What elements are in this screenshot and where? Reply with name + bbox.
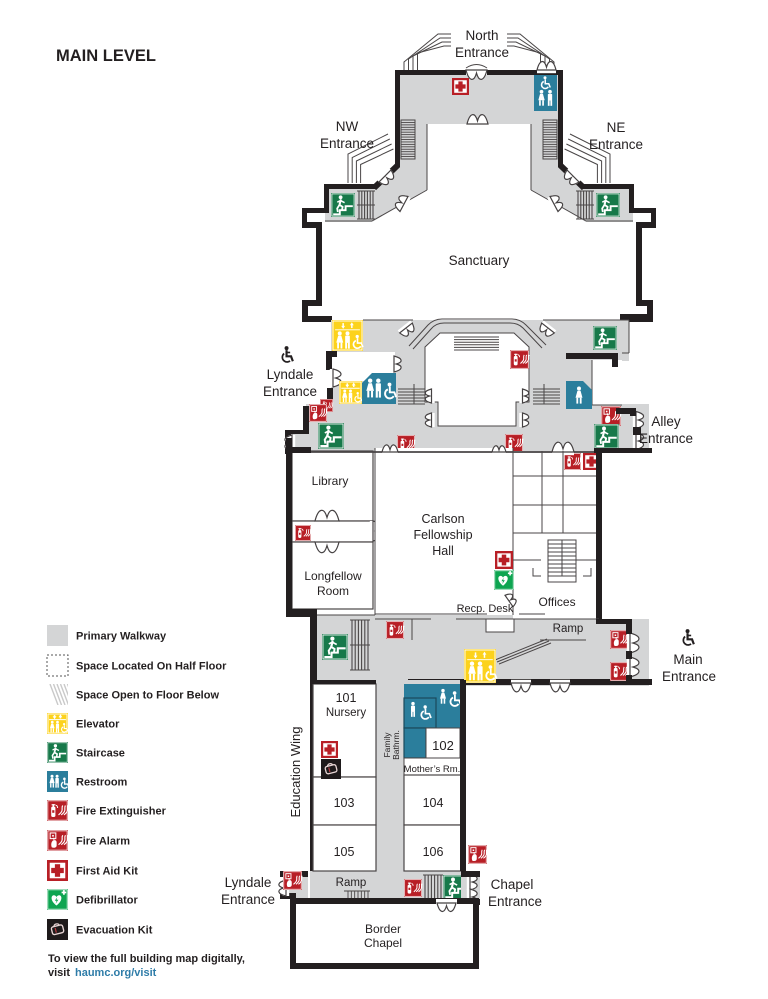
svg-text:Room: Room (317, 584, 349, 598)
svg-text:To view the full building map: To view the full building map digitally, (48, 953, 245, 965)
svg-text:Fire Extinguisher: Fire Extinguisher (76, 806, 167, 818)
svg-text:101: 101 (336, 691, 357, 705)
svg-text:Main: Main (673, 652, 702, 667)
svg-text:NW: NW (336, 119, 359, 134)
svg-text:Nursery: Nursery (326, 707, 367, 719)
svg-text:NE: NE (607, 120, 626, 135)
svg-text:visit: visit (48, 967, 70, 979)
svg-text:Elevator: Elevator (76, 719, 120, 731)
svg-text:Chapel: Chapel (364, 936, 402, 950)
svg-text:103: 103 (334, 796, 355, 810)
svg-text:Education Wing: Education Wing (288, 726, 303, 817)
svg-text:104: 104 (423, 796, 444, 810)
svg-text:Entrance: Entrance (263, 384, 317, 399)
svg-text:Bathrm.: Bathrm. (391, 730, 401, 760)
svg-text:Ramp: Ramp (553, 623, 584, 635)
svg-text:Space Open to Floor Below: Space Open to Floor Below (76, 690, 219, 702)
svg-text:Offices: Offices (538, 595, 575, 609)
svg-text:haumc.org/visit: haumc.org/visit (75, 967, 157, 979)
svg-text:Border: Border (365, 922, 401, 936)
svg-text:Alley: Alley (651, 414, 681, 429)
svg-text:Sanctuary: Sanctuary (449, 253, 510, 268)
svg-text:Entrance: Entrance (589, 137, 643, 152)
svg-text:Restroom: Restroom (76, 777, 128, 789)
svg-text:Primary Walkway: Primary Walkway (76, 631, 167, 643)
svg-text:First Aid Kit: First Aid Kit (76, 866, 138, 878)
svg-text:Library: Library (312, 474, 349, 488)
svg-text:Recp. Desk: Recp. Desk (457, 603, 514, 615)
svg-text:106: 106 (423, 845, 444, 859)
svg-text:Carlson: Carlson (421, 512, 464, 526)
svg-text:Lyndale: Lyndale (225, 875, 272, 890)
svg-text:Fire Alarm: Fire Alarm (76, 836, 130, 848)
svg-text:Lyndale: Lyndale (267, 367, 314, 382)
svg-text:Ramp: Ramp (336, 877, 367, 889)
svg-text:102: 102 (432, 738, 454, 753)
svg-text:Entrance: Entrance (488, 894, 542, 909)
svg-text:Longfellow: Longfellow (304, 569, 362, 583)
svg-text:Space Located On Half Floor: Space Located On Half Floor (76, 661, 227, 673)
svg-text:Mother’s Rm.: Mother’s Rm. (404, 764, 461, 775)
svg-text:Defibrillator: Defibrillator (76, 895, 138, 907)
svg-text:Evacuation Kit: Evacuation Kit (76, 925, 153, 937)
svg-text:MAIN LEVEL: MAIN LEVEL (56, 47, 156, 65)
svg-text:Entrance: Entrance (662, 669, 716, 684)
svg-text:Entrance: Entrance (639, 431, 693, 446)
svg-text:Entrance: Entrance (320, 136, 374, 151)
svg-text:North: North (465, 28, 498, 43)
svg-text:Chapel: Chapel (491, 877, 534, 892)
svg-text:Fellowship: Fellowship (413, 528, 472, 542)
svg-text:Hall: Hall (432, 544, 454, 558)
svg-text:Entrance: Entrance (221, 892, 275, 907)
svg-text:Staircase: Staircase (76, 748, 125, 760)
svg-text:105: 105 (334, 845, 355, 859)
svg-text:Entrance: Entrance (455, 45, 509, 60)
